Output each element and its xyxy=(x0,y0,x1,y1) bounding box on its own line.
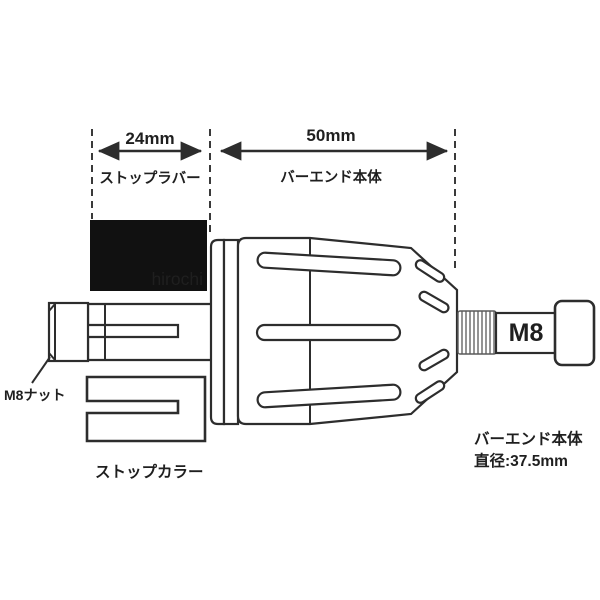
dimension-value-rubber: 24mm xyxy=(125,129,174,148)
label-stop-rubber: ストップラバー xyxy=(99,170,200,187)
spec-block: バーエンド本体 直径:37.5mm xyxy=(474,429,583,470)
stop-collar xyxy=(87,377,205,441)
collet-shaft xyxy=(88,304,216,360)
body-left-cap xyxy=(211,240,224,424)
collet-shaft-outline xyxy=(88,304,216,360)
product-diagram-page: 24mm 50mm ストップラバー バーエンド本体 M8ナット ストップカラー … xyxy=(0,0,600,600)
bar-end-body xyxy=(211,238,457,424)
body-groove-band xyxy=(224,240,238,424)
label-bolt-thread: M8 xyxy=(509,319,544,347)
dimension-value-body: 50mm xyxy=(306,126,355,145)
spec-body-name: バーエンド本体 xyxy=(474,429,583,448)
label-bar-end-body-top: バーエンド本体 xyxy=(280,168,382,186)
body-slot-middle xyxy=(257,325,400,340)
watermark-text: hirochi xyxy=(151,269,203,289)
nut-leader-line xyxy=(32,357,50,383)
thread-section xyxy=(458,311,496,354)
m8-nut xyxy=(49,303,88,361)
label-stop-collar: ストップカラー xyxy=(95,462,204,481)
bolt-head xyxy=(555,301,594,365)
diagram-canvas: 24mm 50mm ストップラバー バーエンド本体 M8ナット ストップカラー … xyxy=(0,0,600,600)
label-m8-nut: M8ナット xyxy=(4,387,65,403)
spec-body-diameter: 直径:37.5mm xyxy=(474,451,568,470)
bolt: M8 xyxy=(496,301,594,365)
